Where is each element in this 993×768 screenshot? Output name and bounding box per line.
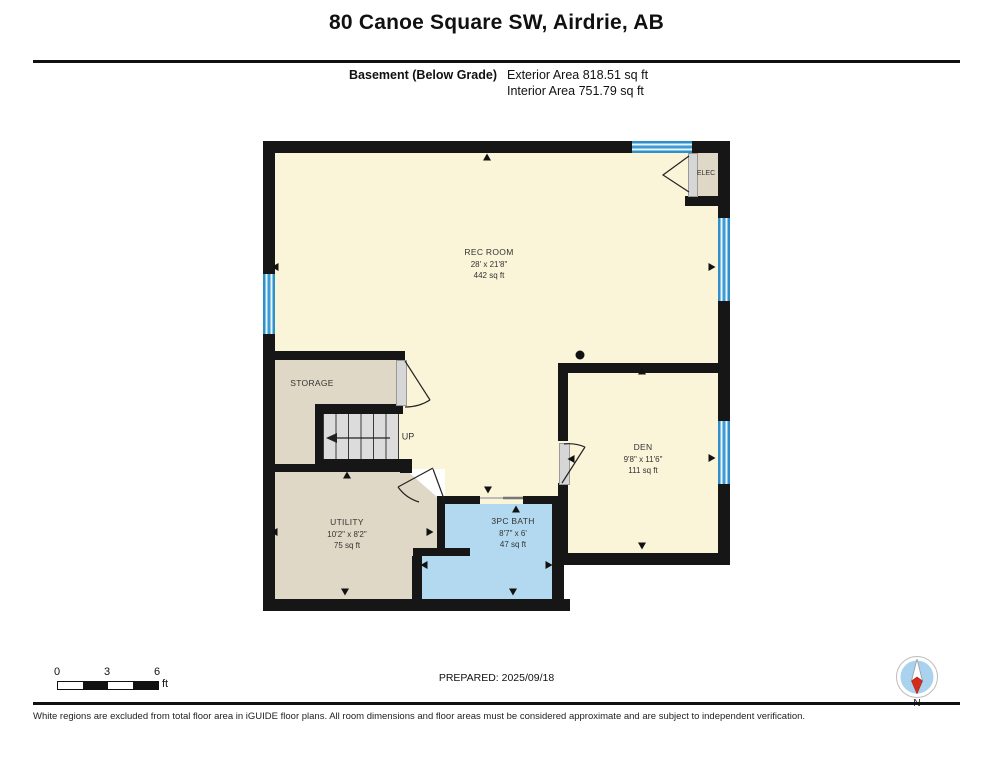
interior-area: Interior Area 751.79 sq ft [507, 84, 644, 98]
door-leaf [562, 447, 585, 483]
door-arc [405, 400, 430, 407]
room-label-rec: REC ROOM 28' x 21'8" 442 sq ft [464, 247, 513, 281]
door-arc [564, 444, 585, 447]
door-arc [398, 487, 419, 502]
room-label-elec: ELEC [697, 169, 715, 179]
measure-arrow-right [427, 528, 434, 536]
measure-arrow-left [421, 561, 428, 569]
door-leaf [398, 468, 433, 487]
door-jamb [433, 469, 444, 499]
measure-arrow-left [568, 455, 575, 463]
measure-arrow-up [638, 368, 646, 375]
measure-arrow-down [484, 487, 492, 494]
page-title: 80 Canoe Square SW, Airdrie, AB [0, 11, 993, 35]
floor-label: Basement (Below Grade) [0, 68, 497, 82]
measure-arrow-down [509, 589, 517, 596]
measure-arrow-right [709, 263, 716, 271]
room-label-utility: UTILITY 10'2" x 8'2" 75 sq ft [327, 517, 366, 551]
measure-arrow-left [271, 528, 278, 536]
disclaimer-text: White regions are excluded from total fl… [33, 711, 963, 722]
room-label-storage: STORAGE [290, 378, 334, 390]
measure-arrow-right [709, 454, 716, 462]
measure-arrow-up [512, 506, 520, 513]
door-elec-swing [663, 156, 689, 192]
room-label-bath: 3PC BATH 8'7" x 6' 47 sq ft [491, 516, 534, 550]
measure-arrow-up [483, 154, 491, 161]
column-dot [576, 351, 585, 360]
room-label-den: DEN 9'8" x 11'6" 111 sq ft [624, 442, 663, 476]
footer-divider [33, 702, 960, 705]
measure-arrow-left [272, 263, 279, 271]
measure-arrow-down [341, 589, 349, 596]
measure-arrow-up [343, 472, 351, 479]
prepared-date: PREPARED: 2025/09/18 [0, 672, 993, 684]
exterior-area: Exterior Area 818.51 sq ft [507, 68, 648, 82]
compass-icon [895, 655, 939, 699]
measure-arrow-down [638, 543, 646, 550]
measure-arrow-right [546, 561, 553, 569]
stairs-up-label: UP [402, 431, 415, 444]
stairs-direction-arrowhead [326, 433, 337, 443]
header-divider [33, 60, 960, 63]
floor-plan: REC ROOM 28' x 21'8" 442 sq ft DEN 9'8" … [263, 141, 730, 611]
door-leaf [405, 361, 430, 400]
